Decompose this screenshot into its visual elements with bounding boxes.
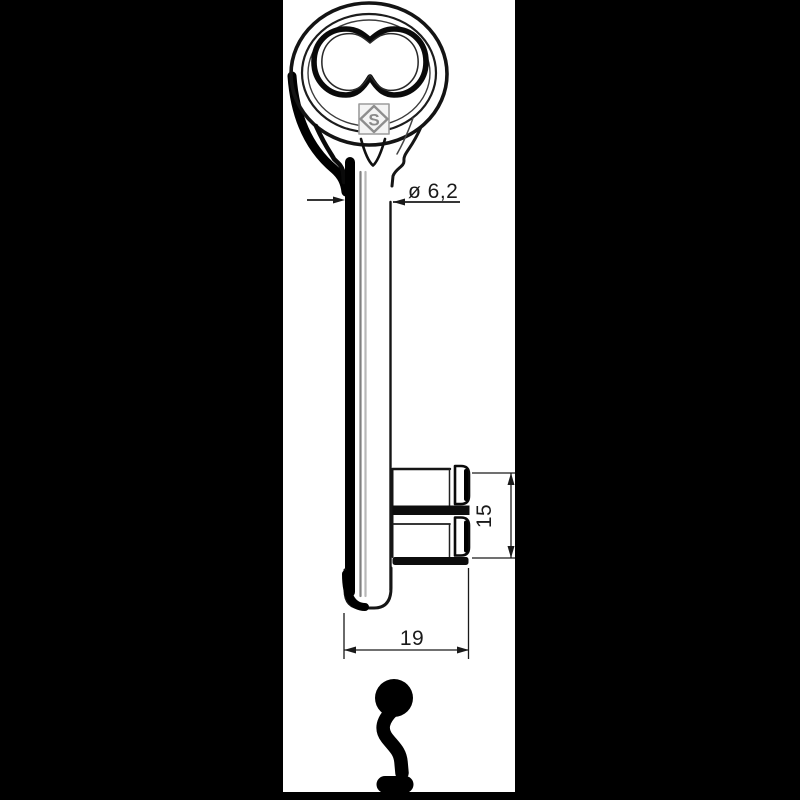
- shaft-diameter-label: ø 6,2: [408, 180, 458, 203]
- maker-stamp: S: [359, 104, 389, 134]
- bit-middle-groove-band: [393, 506, 470, 516]
- bit-height-label: 15: [473, 504, 496, 528]
- bit-width-label: 19: [400, 627, 424, 650]
- key-blank-technical-drawing: S: [0, 0, 800, 800]
- stamp-letter: S: [368, 111, 379, 130]
- page-background: S: [0, 0, 800, 800]
- bit-bottom-edge-band: [393, 557, 469, 565]
